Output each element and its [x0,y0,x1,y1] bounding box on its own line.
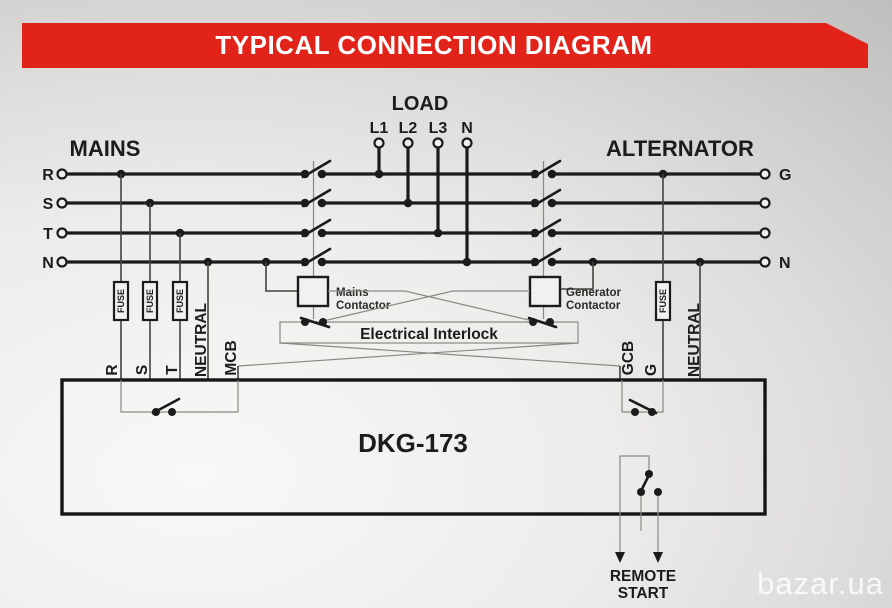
load-terminal-l1-label: L1 [370,120,389,137]
watermark: bazar.ua [757,566,884,602]
mains-t-label: T [43,226,53,243]
load-section-label: LOAD [392,93,449,115]
dkg-term-r: R [104,364,121,375]
mcb-relay-contact [121,380,238,416]
controller-name: DKG-173 [358,428,468,458]
junction-dots [117,170,705,267]
mains-pole-t [301,220,330,237]
mains-pole-n [301,249,330,266]
alternator-g-label: G [779,167,791,184]
load-terminal-l2-label: L2 [399,120,418,137]
fuse-mains-t: FUSE [173,282,187,320]
page: TYPICAL CONNECTION DIAGRAM MAINS ALTERNA… [0,0,892,608]
terminal-alt-3 [761,229,770,238]
dkg-term-neutral-left: NEUTRAL [193,303,210,377]
terminal-alt-2 [761,199,770,208]
mains-section-label: MAINS [70,136,141,161]
generator-contactor-label-1: Generator [566,287,621,299]
load-terminal-n-label: N [461,120,473,137]
generator-contactor-label-2: Contactor [566,300,621,312]
terminal-mains-s [58,199,67,208]
generator-contactor-coil: Generator Contactor [530,277,621,312]
mains-s-label: S [43,196,54,213]
mains-contactor-label-1: Mains [336,287,369,299]
svg-text:FUSE: FUSE [145,289,155,313]
remote-start-contact [615,456,663,563]
mains-pole-s [301,190,330,207]
terminal-mains-n [58,258,67,267]
generator-aux-contact [529,318,556,327]
dkg-term-g: G [643,364,660,376]
mains-r-label: R [42,167,54,184]
svg-text:FUSE: FUSE [175,289,185,313]
interlock-label: Electrical Interlock [360,326,498,343]
dkg-term-mcb: MCB [223,340,240,375]
mains-contactor-coil: Mains Contactor [298,277,391,312]
mains-contactor-label-2: Contactor [336,300,391,312]
terminal-load-l1 [375,139,384,148]
fuse-mains-r: FUSE [114,282,128,320]
mains-aux-contact [301,318,329,327]
dkg-term-neutral-right: NEUTRAL [686,303,703,377]
dkg-term-gcb: GCB [620,341,637,375]
dkg-term-t: T [164,365,181,375]
connection-diagram: MAINS ALTERNATOR LOAD L1 L2 L3 N R S T N… [0,0,892,608]
svg-text:FUSE: FUSE [658,289,668,313]
terminal-alt-n [761,258,770,267]
dkg-term-s: S [134,365,151,375]
gen-pole-r [531,161,560,178]
mains-n-label: N [42,255,54,272]
alternator-section-label: ALTERNATOR [606,136,754,161]
controller-box: DKG-173 [62,380,765,563]
remote-start-label-2: START [618,585,669,602]
gcb-relay-contact [622,380,663,416]
gen-pole-n [531,249,560,266]
terminal-load-l2 [404,139,413,148]
mains-pole-r [301,161,330,178]
alternator-n-label: N [779,255,791,272]
terminal-mains-r [58,170,67,179]
remote-start-arrow-left [615,552,625,563]
mains-phase-labels: R S T N [42,167,54,272]
gen-pole-t [531,220,560,237]
fuse-generator: FUSE [656,282,670,320]
svg-text:FUSE: FUSE [116,289,126,313]
electrical-interlock: Electrical Interlock [238,291,620,380]
terminal-load-l3 [434,139,443,148]
terminal-alt-g [761,170,770,179]
load-terminal-labels: L1 L2 L3 N [370,120,473,137]
terminal-mains-t [58,229,67,238]
terminal-load-n [463,139,472,148]
load-terminal-l3-label: L3 [429,120,448,137]
gen-pole-s [531,190,560,207]
fuse-mains-s: FUSE [143,282,157,320]
remote-start-arrow-right [653,552,663,563]
remote-start-label-1: REMOTE [610,568,676,585]
bus-lines [66,174,761,262]
